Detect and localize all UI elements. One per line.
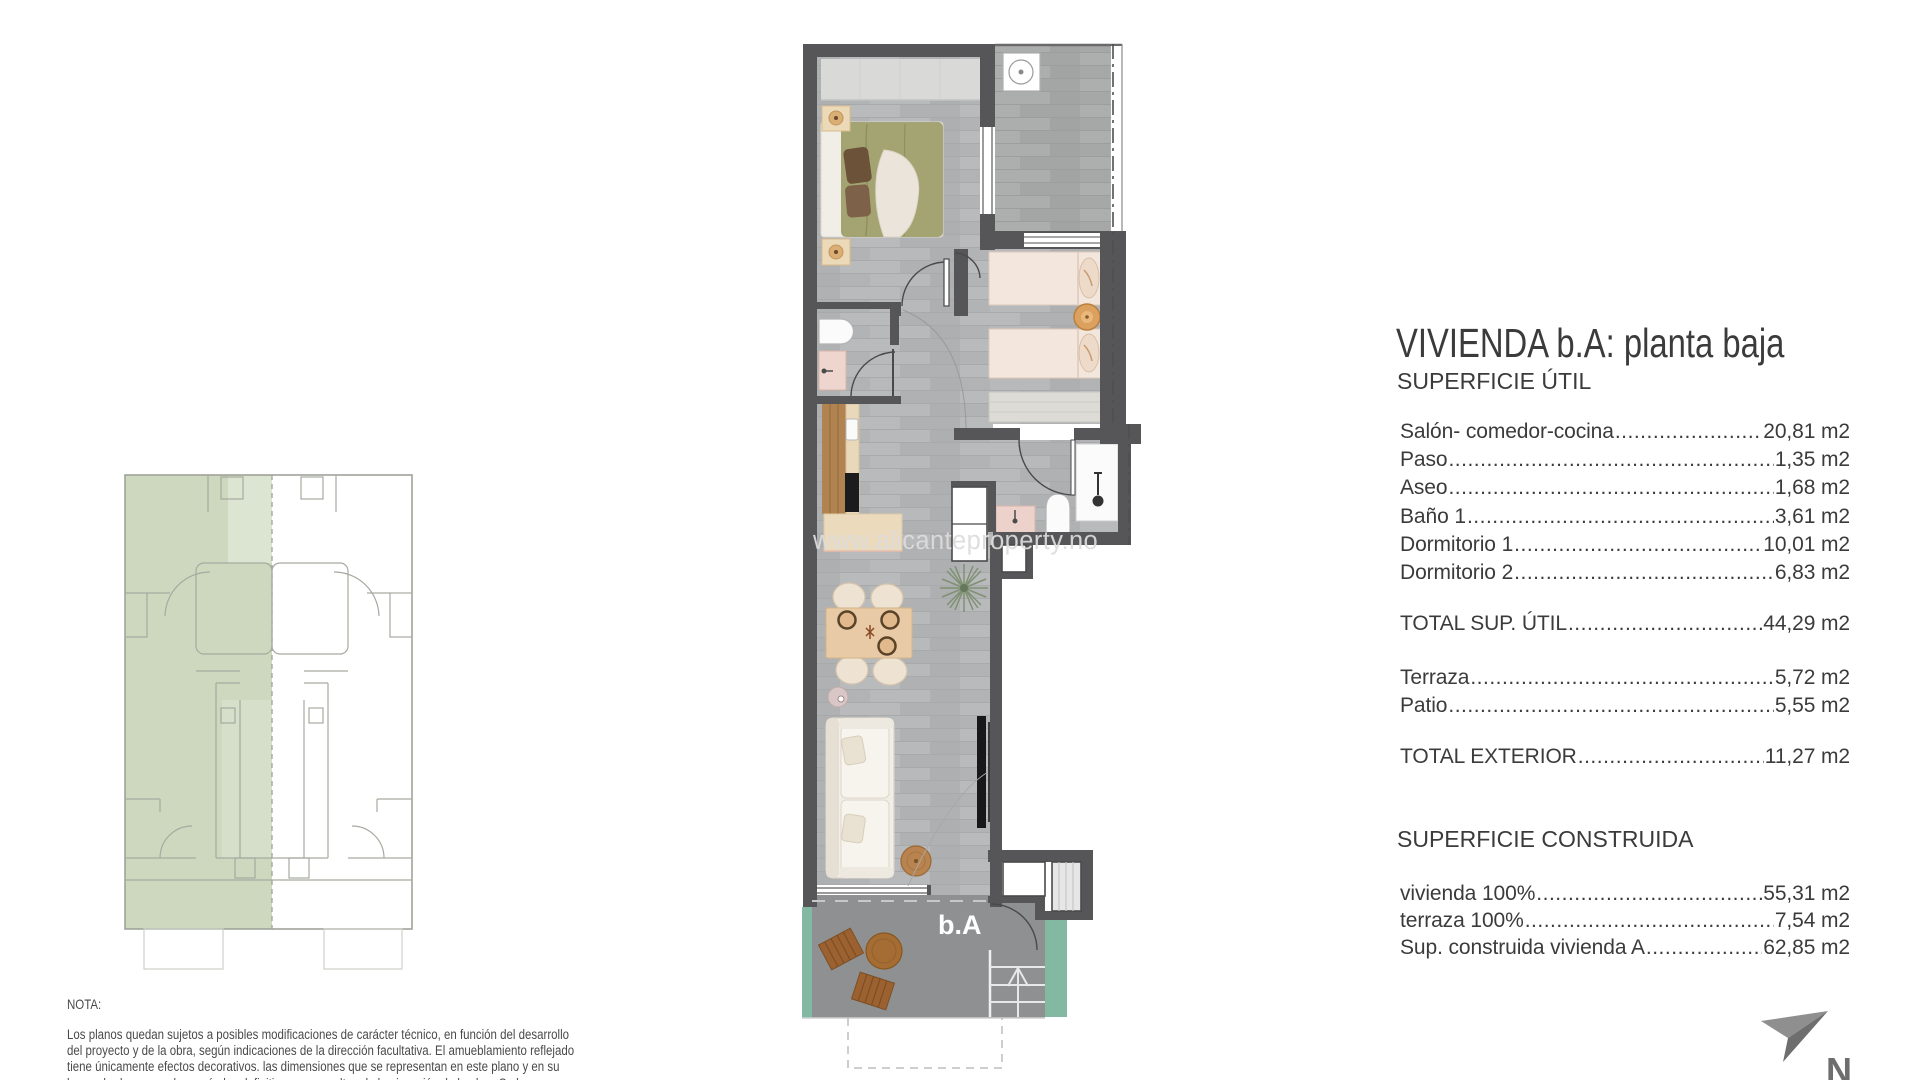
svg-text:b.A: b.A — [938, 910, 982, 940]
svg-text:N: N — [1826, 1050, 1852, 1080]
